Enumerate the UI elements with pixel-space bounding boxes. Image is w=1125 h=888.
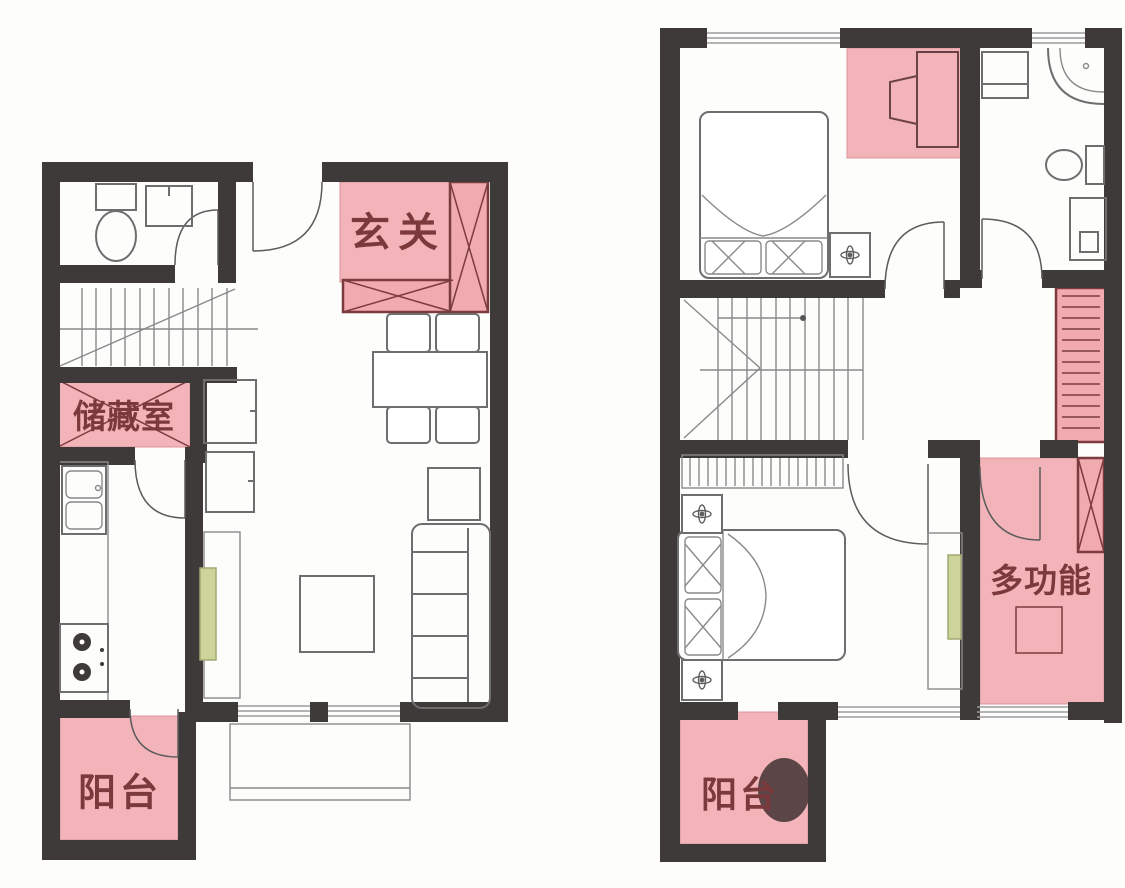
floor2-bathroom xyxy=(982,48,1106,260)
coffee-table xyxy=(300,576,374,652)
bedroom2 xyxy=(678,455,962,700)
stove-icon xyxy=(60,624,108,692)
washer-icon xyxy=(1070,198,1106,260)
bathroom2-door xyxy=(982,219,1042,279)
floor1-plan xyxy=(42,162,508,860)
kitchen xyxy=(60,462,108,700)
nightstand1 xyxy=(830,233,870,277)
floor1-bathroom xyxy=(96,184,192,261)
fridge xyxy=(204,380,256,443)
desk-strip xyxy=(948,555,961,639)
dining-set xyxy=(373,314,487,443)
dining-chair xyxy=(436,314,479,352)
kitchen-sink-icon xyxy=(62,466,106,534)
bedroom1-door xyxy=(885,222,944,289)
toilet-icon xyxy=(96,184,136,261)
dining-chair xyxy=(387,314,430,352)
staircase-floor2 xyxy=(684,298,863,440)
floor-plan-drawing xyxy=(0,0,1125,888)
bathroom1-door xyxy=(175,210,218,265)
floor-plan-canvas: 玄关 储藏室 阳台 多功能 阳台 xyxy=(0,0,1125,888)
balcony2-label: 阳台 xyxy=(701,766,779,818)
dining-chair xyxy=(387,407,430,443)
sofa xyxy=(412,524,490,708)
multifunction-label: 多功能 xyxy=(990,554,1092,602)
storage-label: 储藏室 xyxy=(73,390,175,438)
nightstand2b xyxy=(682,660,722,700)
dining-table xyxy=(373,352,487,407)
corner-shower-icon xyxy=(1048,48,1104,104)
side-table xyxy=(428,468,480,520)
bathroom2-window xyxy=(1032,33,1085,43)
balcony1-label: 阳台 xyxy=(78,762,162,817)
vanity-icon xyxy=(982,52,1028,98)
dining-chair xyxy=(436,407,479,443)
bed1 xyxy=(700,112,828,278)
toilet2-icon xyxy=(1046,146,1104,184)
bed2 xyxy=(678,530,845,660)
staircase-floor1 xyxy=(60,288,258,366)
south-window-left xyxy=(838,707,960,717)
desk-zone xyxy=(847,48,963,158)
kitchen-door xyxy=(135,460,185,518)
living-window-right xyxy=(328,706,400,716)
wardrobe-zone xyxy=(1056,288,1106,442)
bedroom2-door xyxy=(848,464,928,544)
bay-window xyxy=(230,724,410,800)
wardrobe2 xyxy=(682,455,843,488)
hall-cabinet xyxy=(206,452,254,512)
bedroom1-window xyxy=(707,33,840,43)
closet-nook xyxy=(928,533,962,689)
entry-door xyxy=(253,182,322,251)
nightstand2a xyxy=(682,495,722,533)
living-room xyxy=(200,468,490,708)
south-window-right xyxy=(977,707,1068,717)
tv-icon xyxy=(200,568,216,660)
bathroom-sink-icon xyxy=(146,186,192,226)
entry-label: 玄关 xyxy=(350,200,446,258)
living-window-left xyxy=(238,706,310,716)
floor2-plan xyxy=(660,28,1122,862)
